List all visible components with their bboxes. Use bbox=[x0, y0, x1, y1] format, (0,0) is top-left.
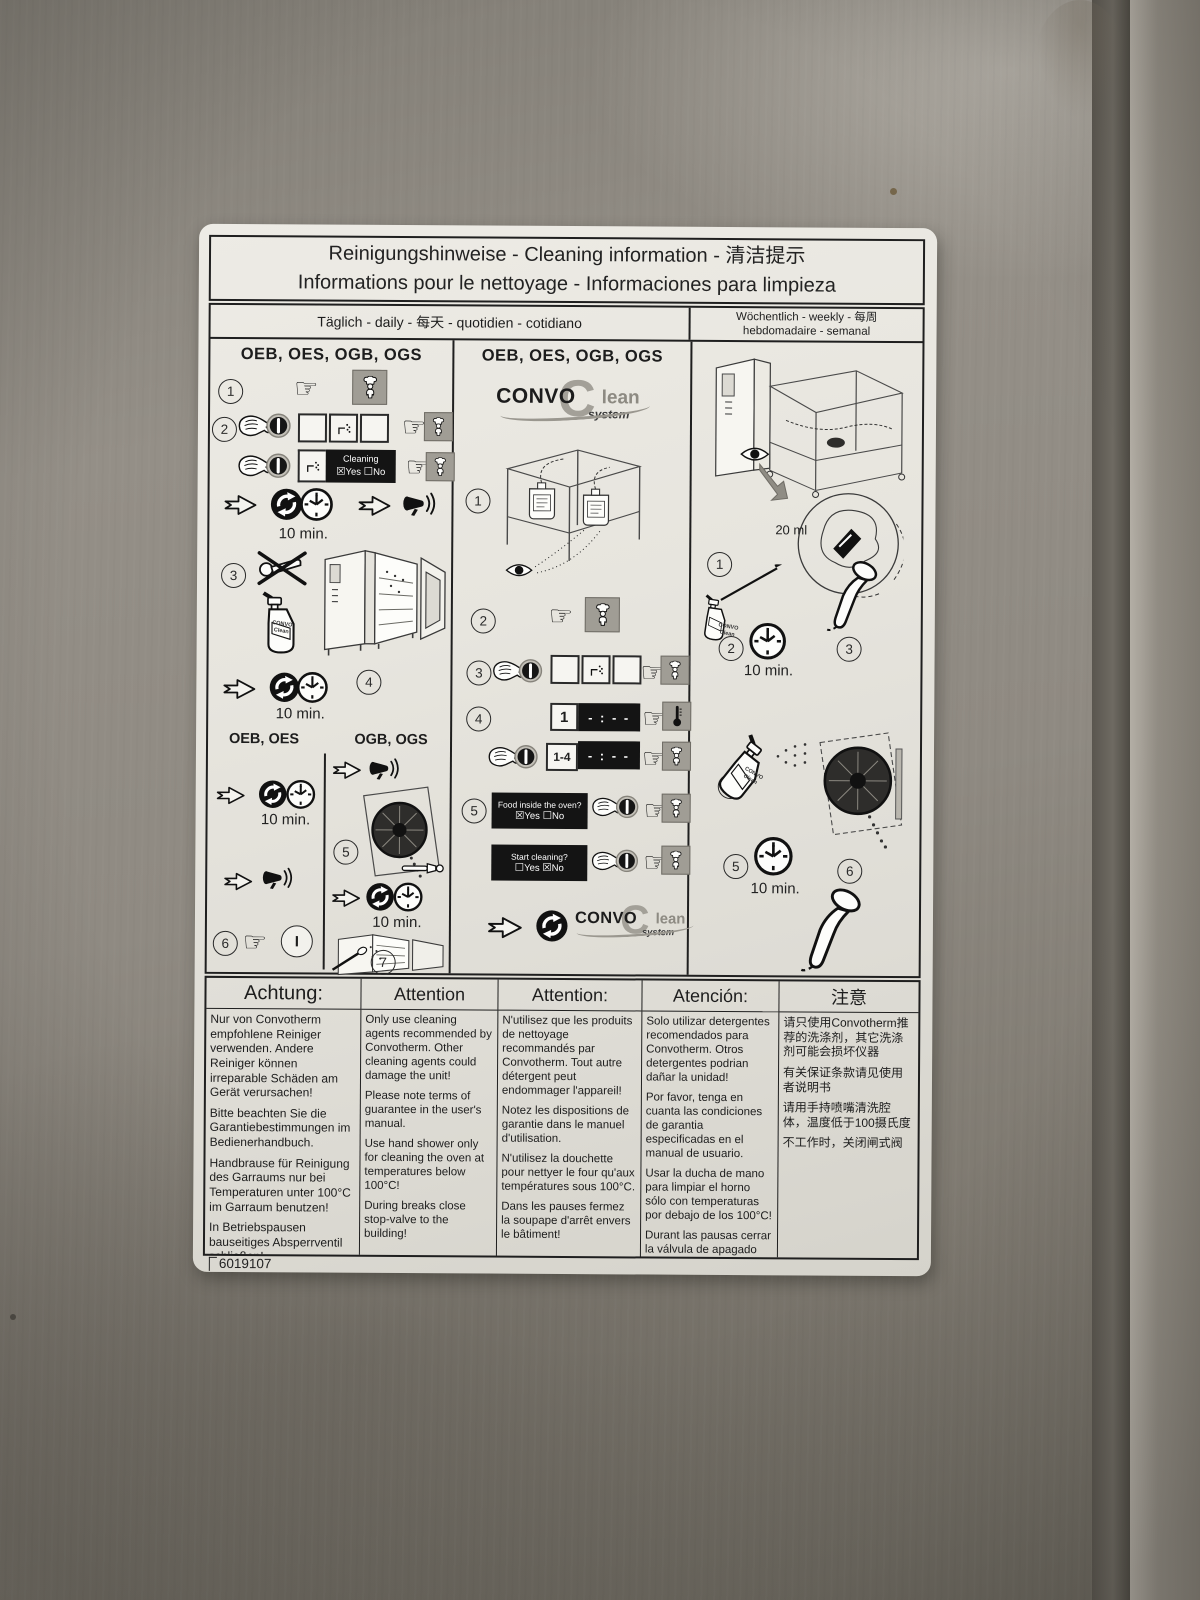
arrow-right-icon bbox=[332, 760, 362, 781]
arrow-right-icon bbox=[222, 677, 256, 701]
dose-label: 20 ml bbox=[775, 522, 807, 537]
power-switch-icon: I bbox=[281, 925, 313, 957]
clock-icon bbox=[296, 671, 328, 703]
program-running-icon bbox=[258, 779, 288, 809]
arrow-right-icon bbox=[487, 915, 523, 941]
step-1-badge: 1 bbox=[218, 379, 243, 404]
instructions-table: Täglich - daily - 每天 - quotidien - cotid… bbox=[205, 303, 925, 978]
pointing-hand-icon: ☞ bbox=[294, 375, 318, 402]
step-3-badge: 3 bbox=[837, 637, 862, 662]
attention-body-zh: 请只使用Convotherm推荐的洗涤剂，其它洗涤剂可能会损坏仪器 有关保证条款… bbox=[778, 1012, 918, 1258]
step-5-badge: 5 bbox=[333, 840, 358, 865]
attention-paragraph: 有关保证条款请见使用者说明书 bbox=[783, 1065, 914, 1095]
duration-label: 10 min. bbox=[244, 811, 328, 829]
step-1-badge: 1 bbox=[465, 488, 490, 513]
daily-column-2: OEB, OES, OGB, OGS C CONVOlean system 1 bbox=[451, 340, 693, 974]
food-inside-display: Food inside the oven? ☒Yes ☐No bbox=[492, 793, 588, 830]
dial-knob-icon bbox=[266, 413, 291, 438]
step-2-badge: 2 bbox=[719, 636, 744, 661]
time-display: - : - - bbox=[578, 741, 640, 769]
step-6-badge: 6 bbox=[213, 931, 238, 956]
attention-paragraph: During breaks close stop-valve to the bu… bbox=[364, 1199, 492, 1242]
attention-header-es: Atención: bbox=[642, 980, 778, 1012]
spray-icon bbox=[305, 458, 321, 474]
attention-header-zh: 注意 bbox=[779, 981, 918, 1013]
spray-arm-icon bbox=[588, 662, 604, 678]
mode-box bbox=[612, 655, 641, 684]
attention-paragraph: Por favor, tenga en cuanta las condicion… bbox=[645, 1091, 773, 1162]
clock-icon bbox=[393, 882, 423, 912]
chef-button-icon bbox=[662, 742, 691, 771]
attention-paragraph: Only use cleaning agents recommended by … bbox=[365, 1013, 493, 1084]
stainless-steel-panel: Reinigungshinweise - Cleaning informatio… bbox=[0, 0, 1200, 1600]
clock-icon bbox=[749, 622, 787, 660]
attention-paragraph: N'utilisez que les produits de nettoyage… bbox=[502, 1014, 638, 1099]
chef-button-icon bbox=[661, 846, 690, 875]
no-hand-shower-icon bbox=[255, 549, 309, 587]
mode-select-display bbox=[298, 413, 389, 443]
step-3-badge: 3 bbox=[466, 660, 491, 685]
attention-col-zh: 注意 请只使用Convotherm推荐的洗涤剂，其它洗涤剂可能会损坏仪器 有关保… bbox=[778, 981, 919, 1258]
col2-models-heading: OEB, OES, OGB, OGS bbox=[454, 346, 690, 366]
daily-column-1: OEB, OES, OGB, OGS 1 ☞ 2 ☞ bbox=[207, 339, 455, 973]
col1-models-heading: OEB, OES, OGB, OGS bbox=[210, 345, 452, 365]
clock-icon bbox=[286, 779, 316, 809]
daily-header: Täglich - daily - 每天 - quotidien - cotid… bbox=[211, 305, 691, 340]
sub-models-right: OGB, OGS bbox=[332, 732, 450, 749]
cleaning-label: Cleaning bbox=[343, 454, 379, 465]
attention-col-de: Achtung: Nur von Convotherm empfohlene R… bbox=[205, 978, 362, 1255]
title-line-1: Reinigungshinweise - Cleaning informatio… bbox=[211, 239, 923, 272]
weekly-column: 20 ml 1 CONVOClea bbox=[689, 342, 921, 976]
attention-paragraph: Usar la ducha de mano para limpiar el ho… bbox=[645, 1167, 773, 1224]
instructions-body: OEB, OES, OGB, OGS 1 ☞ 2 ☞ bbox=[207, 339, 923, 976]
duration-label: 10 min. bbox=[355, 914, 439, 932]
spray-cell bbox=[298, 449, 326, 482]
dial-knob-icon bbox=[266, 453, 291, 478]
dial-knob-icon bbox=[616, 795, 639, 818]
attention-header-de: Achtung: bbox=[206, 978, 360, 1010]
step-6-badge: 6 bbox=[837, 859, 862, 884]
step-4-badge: 4 bbox=[356, 670, 381, 695]
chef-button-icon bbox=[426, 452, 455, 481]
mode-select-display bbox=[550, 655, 641, 685]
chef-button-icon bbox=[352, 370, 387, 405]
signal-horn-icon bbox=[401, 490, 437, 518]
clock-icon bbox=[299, 487, 333, 521]
arrow-right-icon bbox=[223, 871, 253, 892]
start-question: Start cleaning? bbox=[511, 851, 568, 862]
duration-label: 10 min. bbox=[258, 705, 342, 723]
attention-body-es: Solo utilizar detergentes recomendados p… bbox=[641, 1011, 778, 1257]
part-number-text: 6019107 bbox=[219, 1256, 272, 1271]
food-question: Food inside the oven? bbox=[498, 799, 582, 810]
signal-horn-icon bbox=[261, 865, 294, 891]
corner-tick bbox=[209, 1257, 217, 1271]
chef-button-icon bbox=[585, 597, 620, 632]
attention-paragraph: N'utilisez la douchette pour nettyer le … bbox=[501, 1152, 636, 1195]
attention-paragraph: Please note terms of guarantee in the us… bbox=[365, 1089, 493, 1132]
convoclean-logo: C CONVOlean system bbox=[575, 901, 684, 942]
attention-col-es: Atención: Solo utilizar detergentes reco… bbox=[641, 980, 780, 1257]
mode-box bbox=[298, 413, 327, 442]
attention-paragraph: Durant las pausas cerrar la válvula de a… bbox=[645, 1229, 773, 1258]
step-5-badge: 5 bbox=[723, 854, 748, 879]
oven-frame-illustration bbox=[695, 350, 916, 511]
attention-paragraph: Notez les dispositions de garantie dans … bbox=[502, 1104, 637, 1147]
attention-body-fr: N'utilisez que les produits de nettoyage… bbox=[497, 1011, 641, 1257]
attention-body-de: Nur von Convotherm empfohlene Reiniger v… bbox=[205, 1009, 360, 1255]
arrow-right-icon bbox=[357, 494, 391, 518]
duration-label: 10 min. bbox=[726, 662, 810, 680]
attention-col-en: Attention Only use cleaning agents recom… bbox=[360, 979, 499, 1256]
attention-header-fr: Attention: bbox=[498, 980, 641, 1012]
yes-no-row: ☒Yes ☐No bbox=[515, 809, 564, 822]
attention-paragraph: Handbrause für Reinigung des Garraums nu… bbox=[209, 1155, 355, 1214]
rack-number-display: 1 bbox=[550, 703, 578, 731]
arrow-right-icon bbox=[223, 493, 257, 517]
cleaning-information-label: Reinigungshinweise - Cleaning informatio… bbox=[193, 224, 937, 1276]
cleaning-confirm-display: Cleaning ☒Yes ☐No bbox=[298, 449, 396, 483]
attention-paragraph: 请只使用Convotherm推荐的洗涤剂，其它洗涤剂可能会损坏仪器 bbox=[783, 1015, 914, 1060]
hand-shower-icon bbox=[797, 886, 868, 972]
program-running-icon bbox=[535, 909, 569, 943]
spray-icon bbox=[335, 420, 351, 436]
fan-wheel-spray-illustration bbox=[807, 728, 914, 849]
dial-knob-icon bbox=[518, 659, 542, 683]
title-line-2: Informations pour le nettoyage - Informa… bbox=[211, 268, 923, 301]
step-3-badge: 3 bbox=[221, 563, 246, 588]
pointing-hand-icon: ☞ bbox=[549, 603, 573, 630]
sub-column-divider bbox=[323, 754, 326, 970]
label-title-box: Reinigungshinweise - Cleaning informatio… bbox=[209, 235, 925, 305]
schedule-header-row: Täglich - daily - 每天 - quotidien - cotid… bbox=[211, 305, 923, 343]
attention-paragraph: Bitte beachten Sie die Garantiebestimmun… bbox=[210, 1106, 356, 1151]
start-cleaning-display: Start cleaning? ☐Yes ☒No bbox=[491, 845, 587, 882]
mode-box bbox=[360, 414, 389, 443]
program-running-icon bbox=[365, 882, 395, 912]
pointing-hand-icon: ☞ bbox=[243, 929, 267, 956]
attention-paragraph: In Betriebspausen bauseitiges Absperrven… bbox=[209, 1220, 355, 1255]
clock-icon bbox=[753, 836, 793, 876]
step-2-badge: 2 bbox=[212, 417, 237, 442]
sub-models-left: OEB, OES bbox=[208, 731, 320, 748]
weekly-header: Wöchentlich - weekly - 每周 hebdomadaire -… bbox=[691, 308, 923, 341]
rack-range-display: 1-4 bbox=[546, 743, 578, 771]
thermometer-button-icon bbox=[662, 702, 691, 731]
yes-no-row: ☐Yes ☒No bbox=[515, 861, 564, 874]
chef-button-icon bbox=[662, 794, 691, 823]
dial-knob-icon bbox=[615, 849, 638, 872]
arrow-right-icon bbox=[216, 785, 246, 806]
attention-paragraph: 请用手持喷嘴清洗腔体，温度低于100摄氏度 bbox=[783, 1100, 914, 1130]
arrow-right-icon bbox=[331, 888, 361, 909]
attention-header-en: Attention bbox=[361, 979, 497, 1011]
hand-shower-icon bbox=[825, 559, 881, 633]
step-4-badge: 4 bbox=[466, 706, 491, 731]
grey-arrow-icon bbox=[760, 464, 788, 500]
dial-knob-icon bbox=[514, 745, 538, 769]
chef-button-icon bbox=[660, 656, 689, 685]
attention-table: Achtung: Nur von Convotherm empfohlene R… bbox=[203, 976, 921, 1260]
mode-box-clean bbox=[581, 655, 610, 684]
step-2-badge: 2 bbox=[471, 608, 496, 633]
mode-box-shower bbox=[329, 414, 358, 443]
yes-no-row: ☒Yes ☐No bbox=[336, 465, 385, 478]
step-5-badge: 5 bbox=[462, 798, 487, 823]
part-number: 6019107 bbox=[209, 1256, 272, 1271]
time-display: - : - - bbox=[578, 703, 640, 731]
drain-lever-icon bbox=[399, 860, 445, 876]
attention-paragraph: Solo utilizar detergentes recomendados p… bbox=[646, 1015, 774, 1086]
convoclean-logo: C CONVOlean system bbox=[496, 375, 656, 428]
attention-col-fr: Attention: N'utilisez que les produits d… bbox=[497, 980, 643, 1257]
step-7-badge: 7 bbox=[371, 950, 396, 975]
canister-stand-illustration bbox=[497, 437, 650, 588]
oven-open-door-illustration bbox=[308, 539, 449, 668]
attention-paragraph: 不工作时，关闭闸式阀 bbox=[783, 1136, 914, 1151]
pointing-hand-icon: ☞ bbox=[402, 414, 426, 441]
attention-body-en: Only use cleaning agents recommended by … bbox=[360, 1010, 497, 1256]
mode-box bbox=[550, 655, 579, 684]
attention-paragraph: Dans les pauses fermez la soupape d'arrê… bbox=[501, 1200, 636, 1243]
attention-paragraph: Nur von Convotherm empfohlene Reiniger v… bbox=[210, 1012, 357, 1101]
attention-paragraph: Use hand shower only for cleaning the ov… bbox=[364, 1137, 492, 1194]
cleaning-question-cell: Cleaning ☒Yes ☐No bbox=[326, 450, 396, 483]
weekly-header-line1: Wöchentlich - weekly - 每周 bbox=[736, 310, 877, 325]
signal-horn-icon bbox=[368, 756, 401, 782]
chef-button-icon bbox=[424, 412, 453, 441]
weekly-header-line2: hebdomadaire - semanal bbox=[743, 324, 870, 339]
